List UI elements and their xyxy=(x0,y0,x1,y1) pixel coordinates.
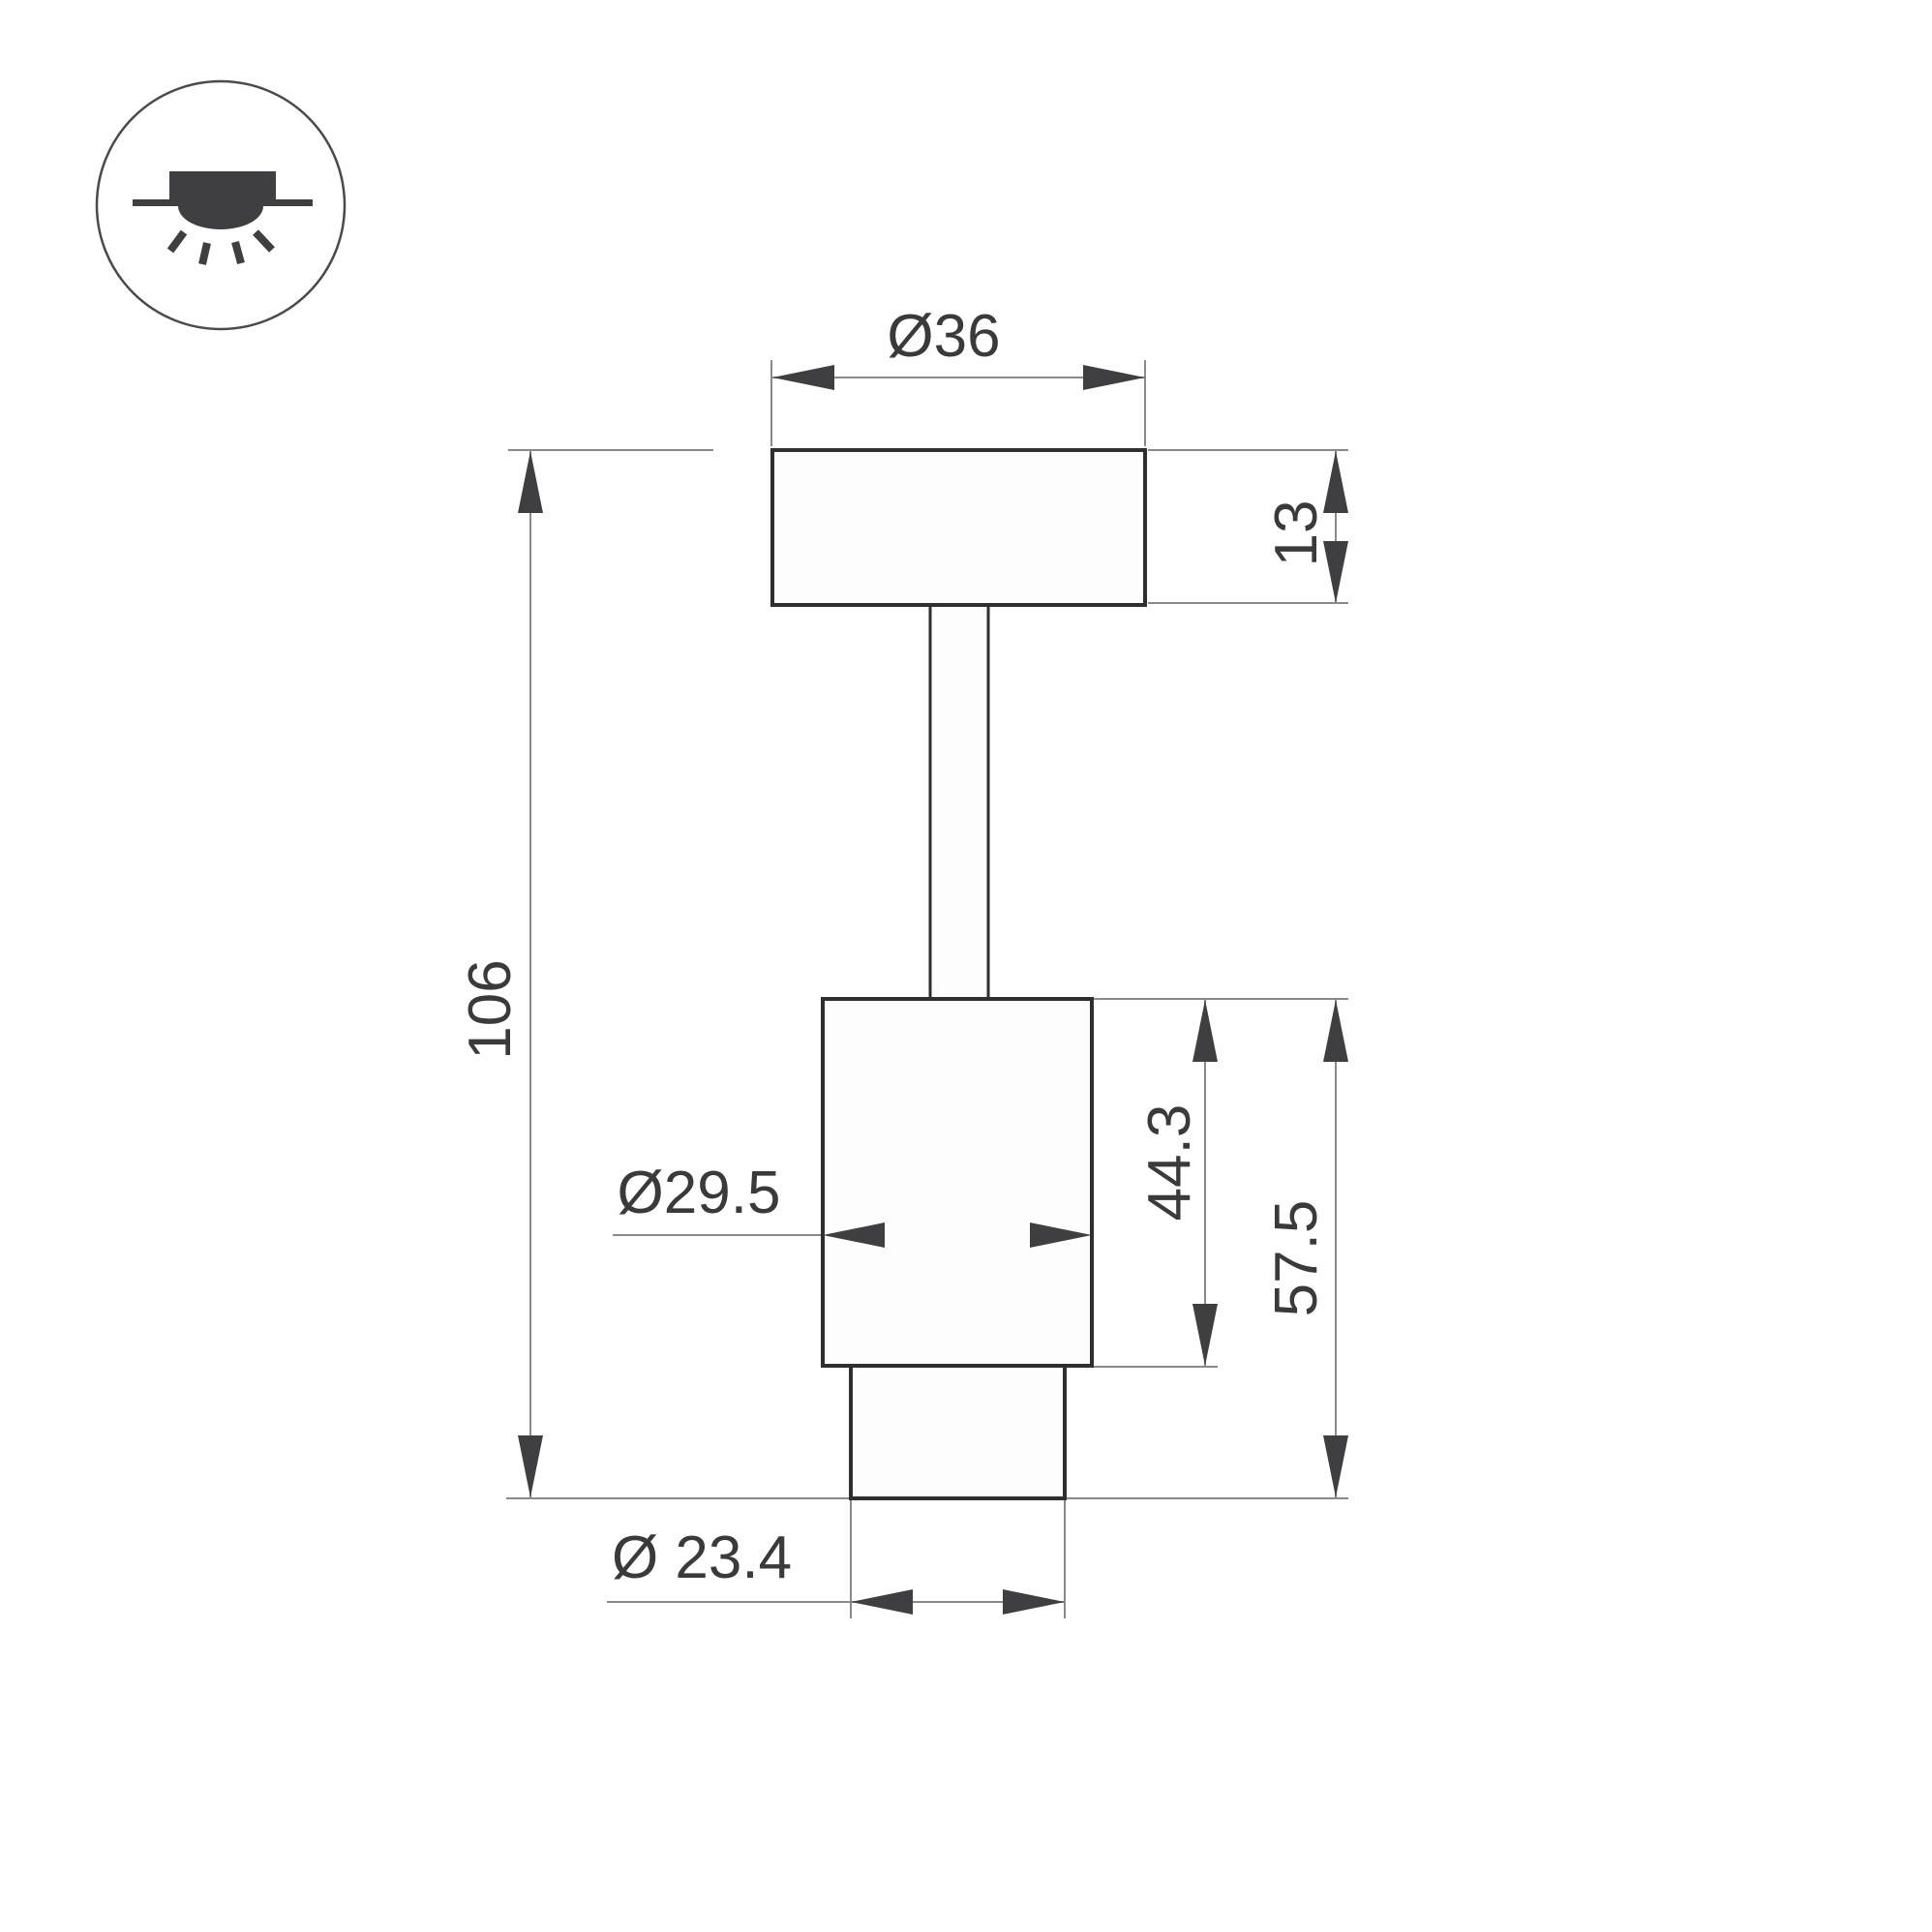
arrow-bottom-diameter-right xyxy=(1003,1589,1065,1615)
label-body-height: 44.3 xyxy=(1136,1104,1203,1222)
arrow-overall-top xyxy=(518,451,543,513)
technical-drawing-page: Ø36 13 106 Ø29.5 44.3 57.5 Ø 23.4 xyxy=(0,0,1932,1932)
arrow-lower-height-top xyxy=(1323,1000,1348,1062)
arrow-overall-bottom xyxy=(518,1435,543,1497)
label-cap-height: 13 xyxy=(1263,500,1330,567)
arrow-lower-height-bottom xyxy=(1323,1435,1348,1497)
icon-ceiling-line xyxy=(133,199,313,206)
icon-lamp-housing xyxy=(169,171,276,202)
fixture-body xyxy=(823,999,1092,1366)
arrow-top-diameter-left xyxy=(772,365,834,390)
label-body-diameter: Ø29.5 xyxy=(618,1160,781,1226)
label-top-diameter: Ø36 xyxy=(887,303,1000,370)
fixture-stem xyxy=(930,605,988,999)
arrow-body-height-bottom xyxy=(1192,1304,1218,1366)
fixture-ceiling-cap xyxy=(772,450,1145,605)
label-lower-height: 57.5 xyxy=(1263,1200,1330,1317)
arrow-body-height-top xyxy=(1192,1000,1218,1062)
arrow-top-diameter-right xyxy=(1083,365,1145,390)
arrow-bottom-diameter-left xyxy=(851,1589,913,1615)
luminaire-outline xyxy=(772,450,1145,1498)
surface-mount-light-icon xyxy=(97,81,345,329)
fixture-nozzle xyxy=(851,1366,1065,1498)
label-overall-height: 106 xyxy=(457,959,524,1059)
technical-drawing-canvas: Ø36 13 106 Ø29.5 44.3 57.5 Ø 23.4 xyxy=(0,0,1932,1932)
label-bottom-diameter: Ø 23.4 xyxy=(612,1524,792,1591)
